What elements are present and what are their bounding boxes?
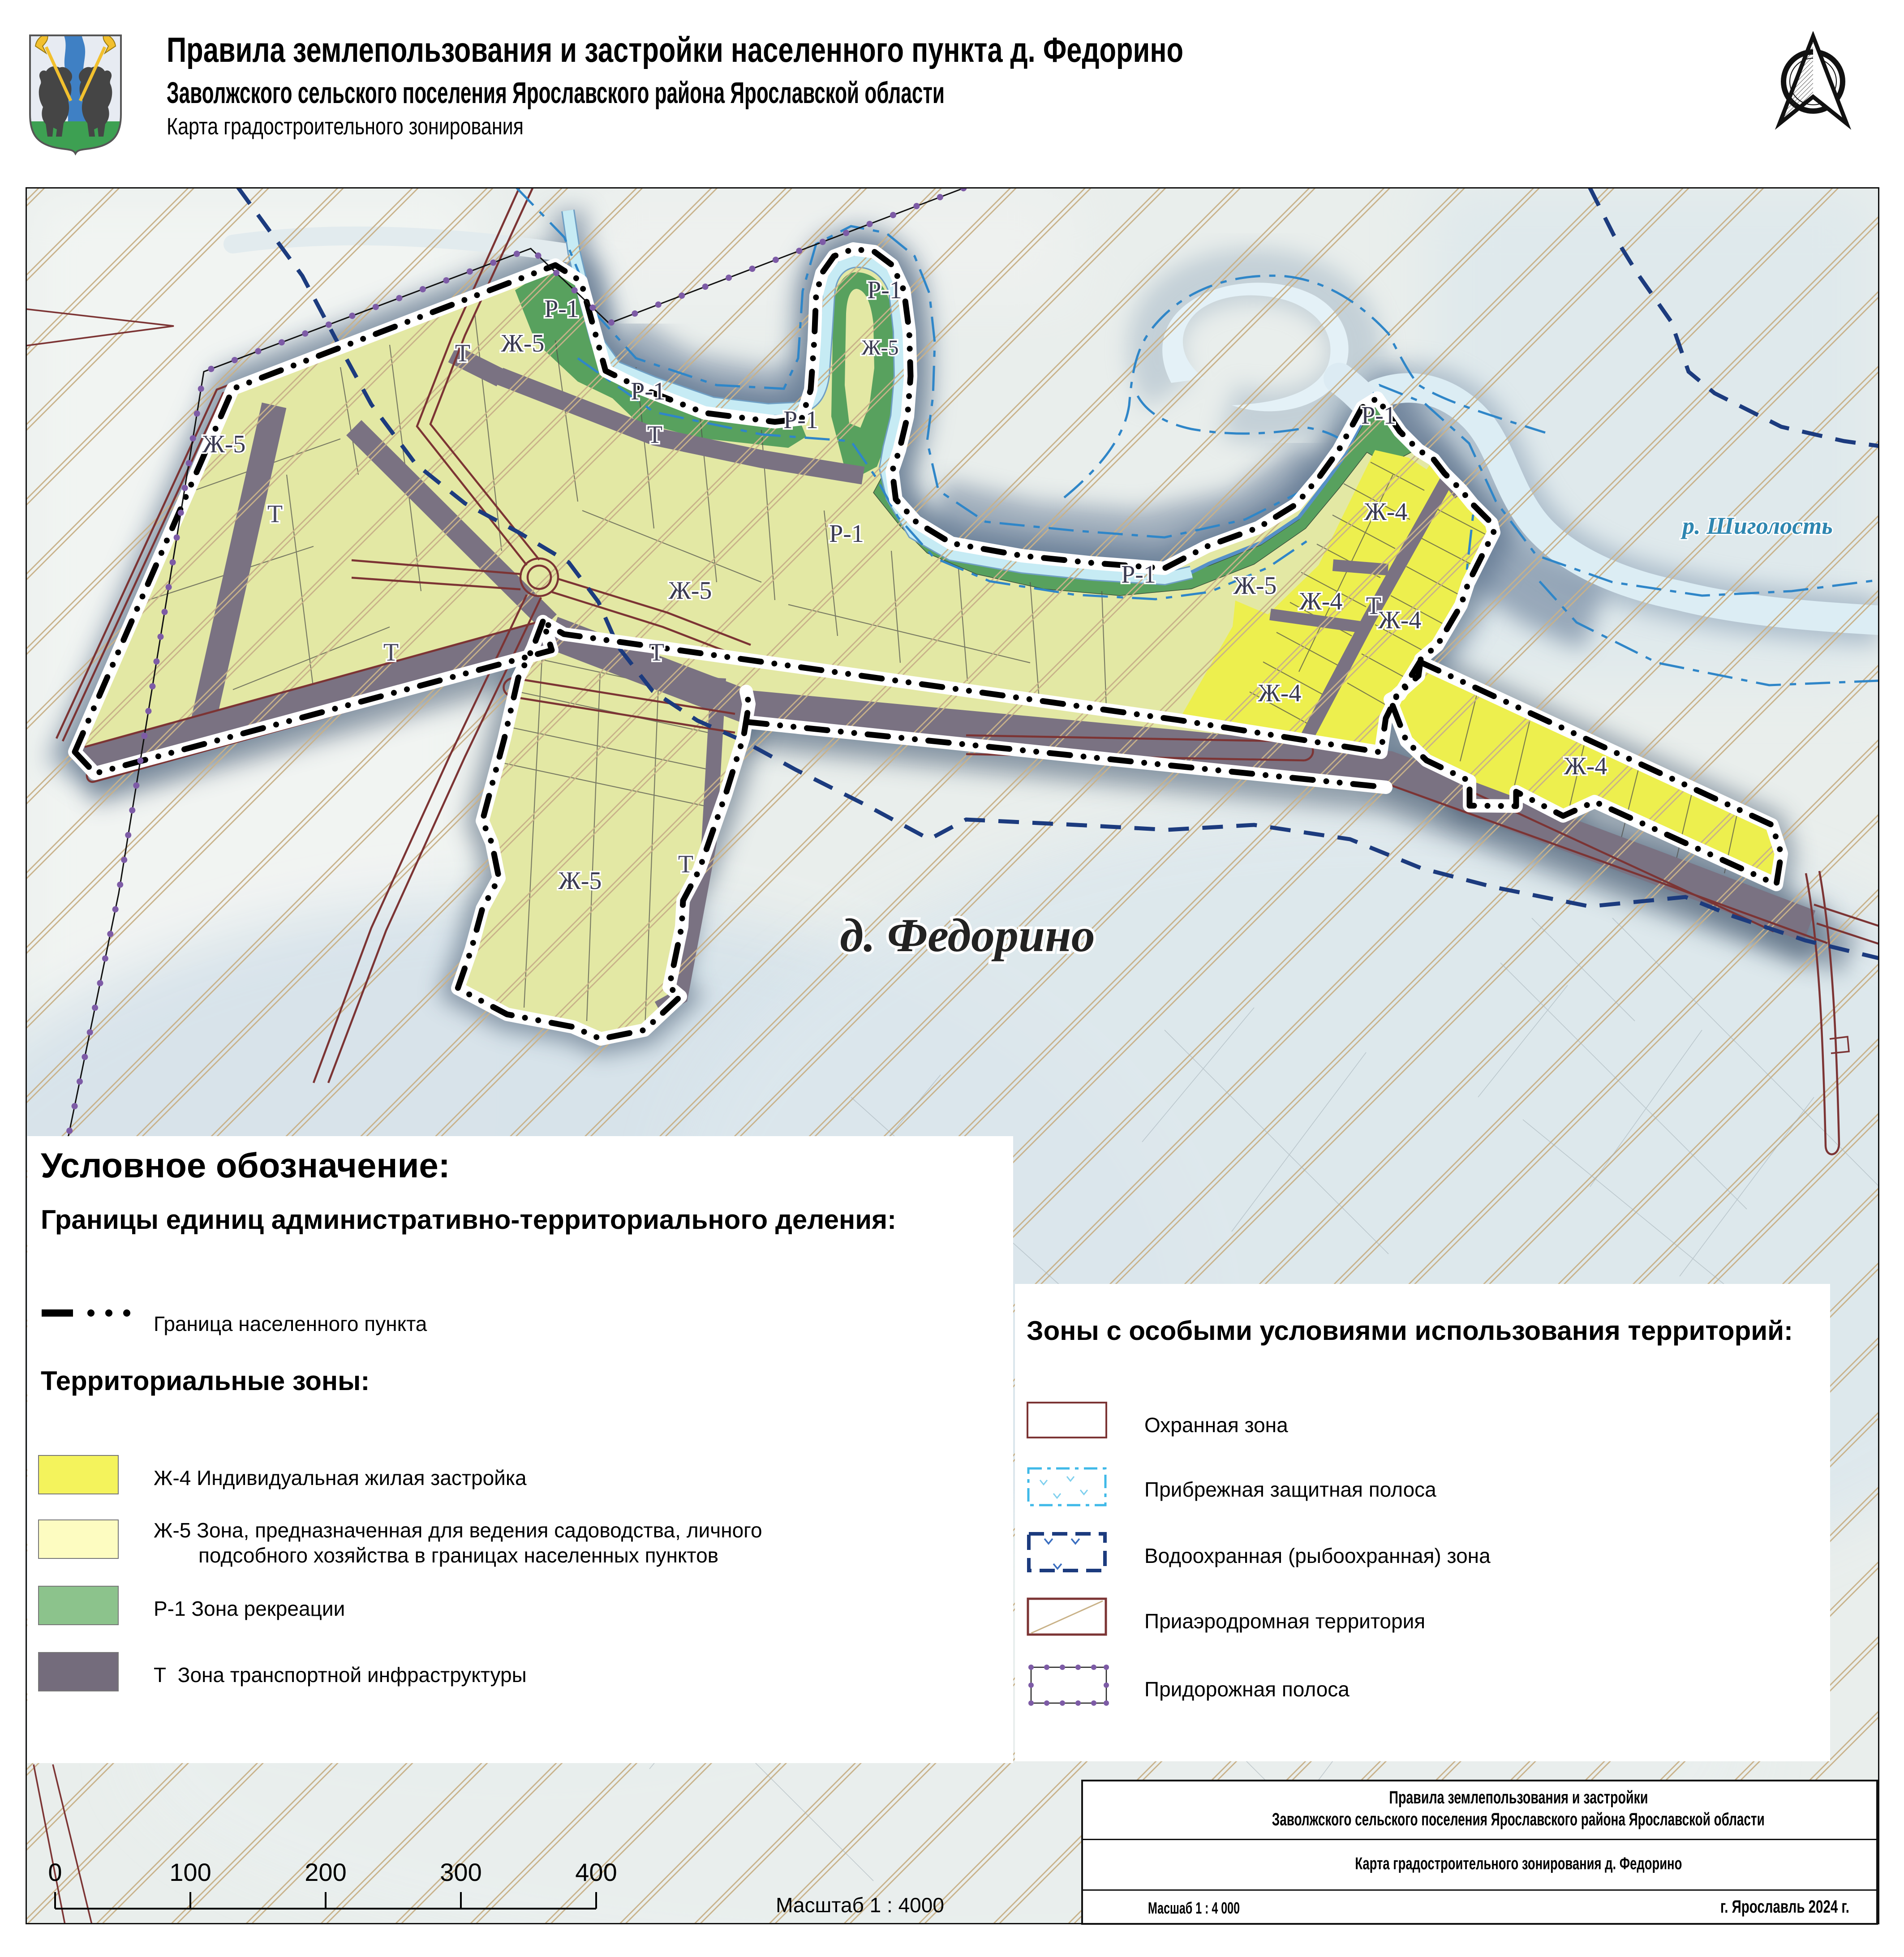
svg-text:Ж-5: Ж-5	[202, 430, 246, 458]
svg-text:Ж-4: Ж-4	[1299, 588, 1343, 615]
svg-text:Ж-4: Ж-4	[1364, 498, 1408, 526]
svg-text:Ж-5: Ж-5	[669, 577, 712, 605]
svg-text:Р-1: Р-1	[1121, 561, 1156, 588]
svg-text:0: 0	[48, 1858, 62, 1886]
svg-text:Р-1: Р-1	[783, 406, 818, 434]
svg-text:Т: Т	[678, 850, 693, 878]
svg-text:Р-1: Р-1	[1361, 402, 1396, 429]
svg-text:200: 200	[305, 1858, 346, 1886]
svg-text:Ж-4: Ж-4	[1564, 752, 1607, 780]
svg-text:Р-1: Р-1	[631, 378, 666, 405]
svg-text:Масштаб 1 : 4000: Масштаб 1 : 4000	[776, 1893, 944, 1917]
svg-text:Т: Т	[455, 339, 470, 367]
svg-text:Т: Т	[267, 500, 283, 528]
svg-text:Т: Т	[649, 639, 664, 666]
svg-text:Т: Т	[647, 421, 662, 449]
svg-text:Ж-4: Ж-4	[1258, 679, 1302, 707]
svg-text:Р-1: Р-1	[867, 276, 902, 304]
svg-text:100: 100	[169, 1858, 211, 1886]
svg-text:Ж-5: Ж-5	[501, 330, 545, 357]
svg-text:Т: Т	[383, 639, 399, 666]
svg-text:д. Федорино: д. Федорино	[840, 909, 1095, 961]
svg-text:Р-1: Р-1	[829, 520, 864, 548]
svg-text:300: 300	[440, 1858, 481, 1886]
svg-text:Р-1: Р-1	[544, 295, 579, 323]
svg-text:Ж-5: Ж-5	[559, 867, 602, 895]
svg-text:400: 400	[575, 1858, 617, 1886]
svg-text:Т: Т	[1366, 592, 1381, 620]
svg-text:Ж-4: Ж-4	[1378, 606, 1422, 634]
svg-text:Ж-5: Ж-5	[1234, 572, 1277, 600]
svg-text:р. Шиголость: р. Шиголость	[1681, 512, 1833, 539]
svg-text:Ж-5: Ж-5	[862, 336, 899, 360]
